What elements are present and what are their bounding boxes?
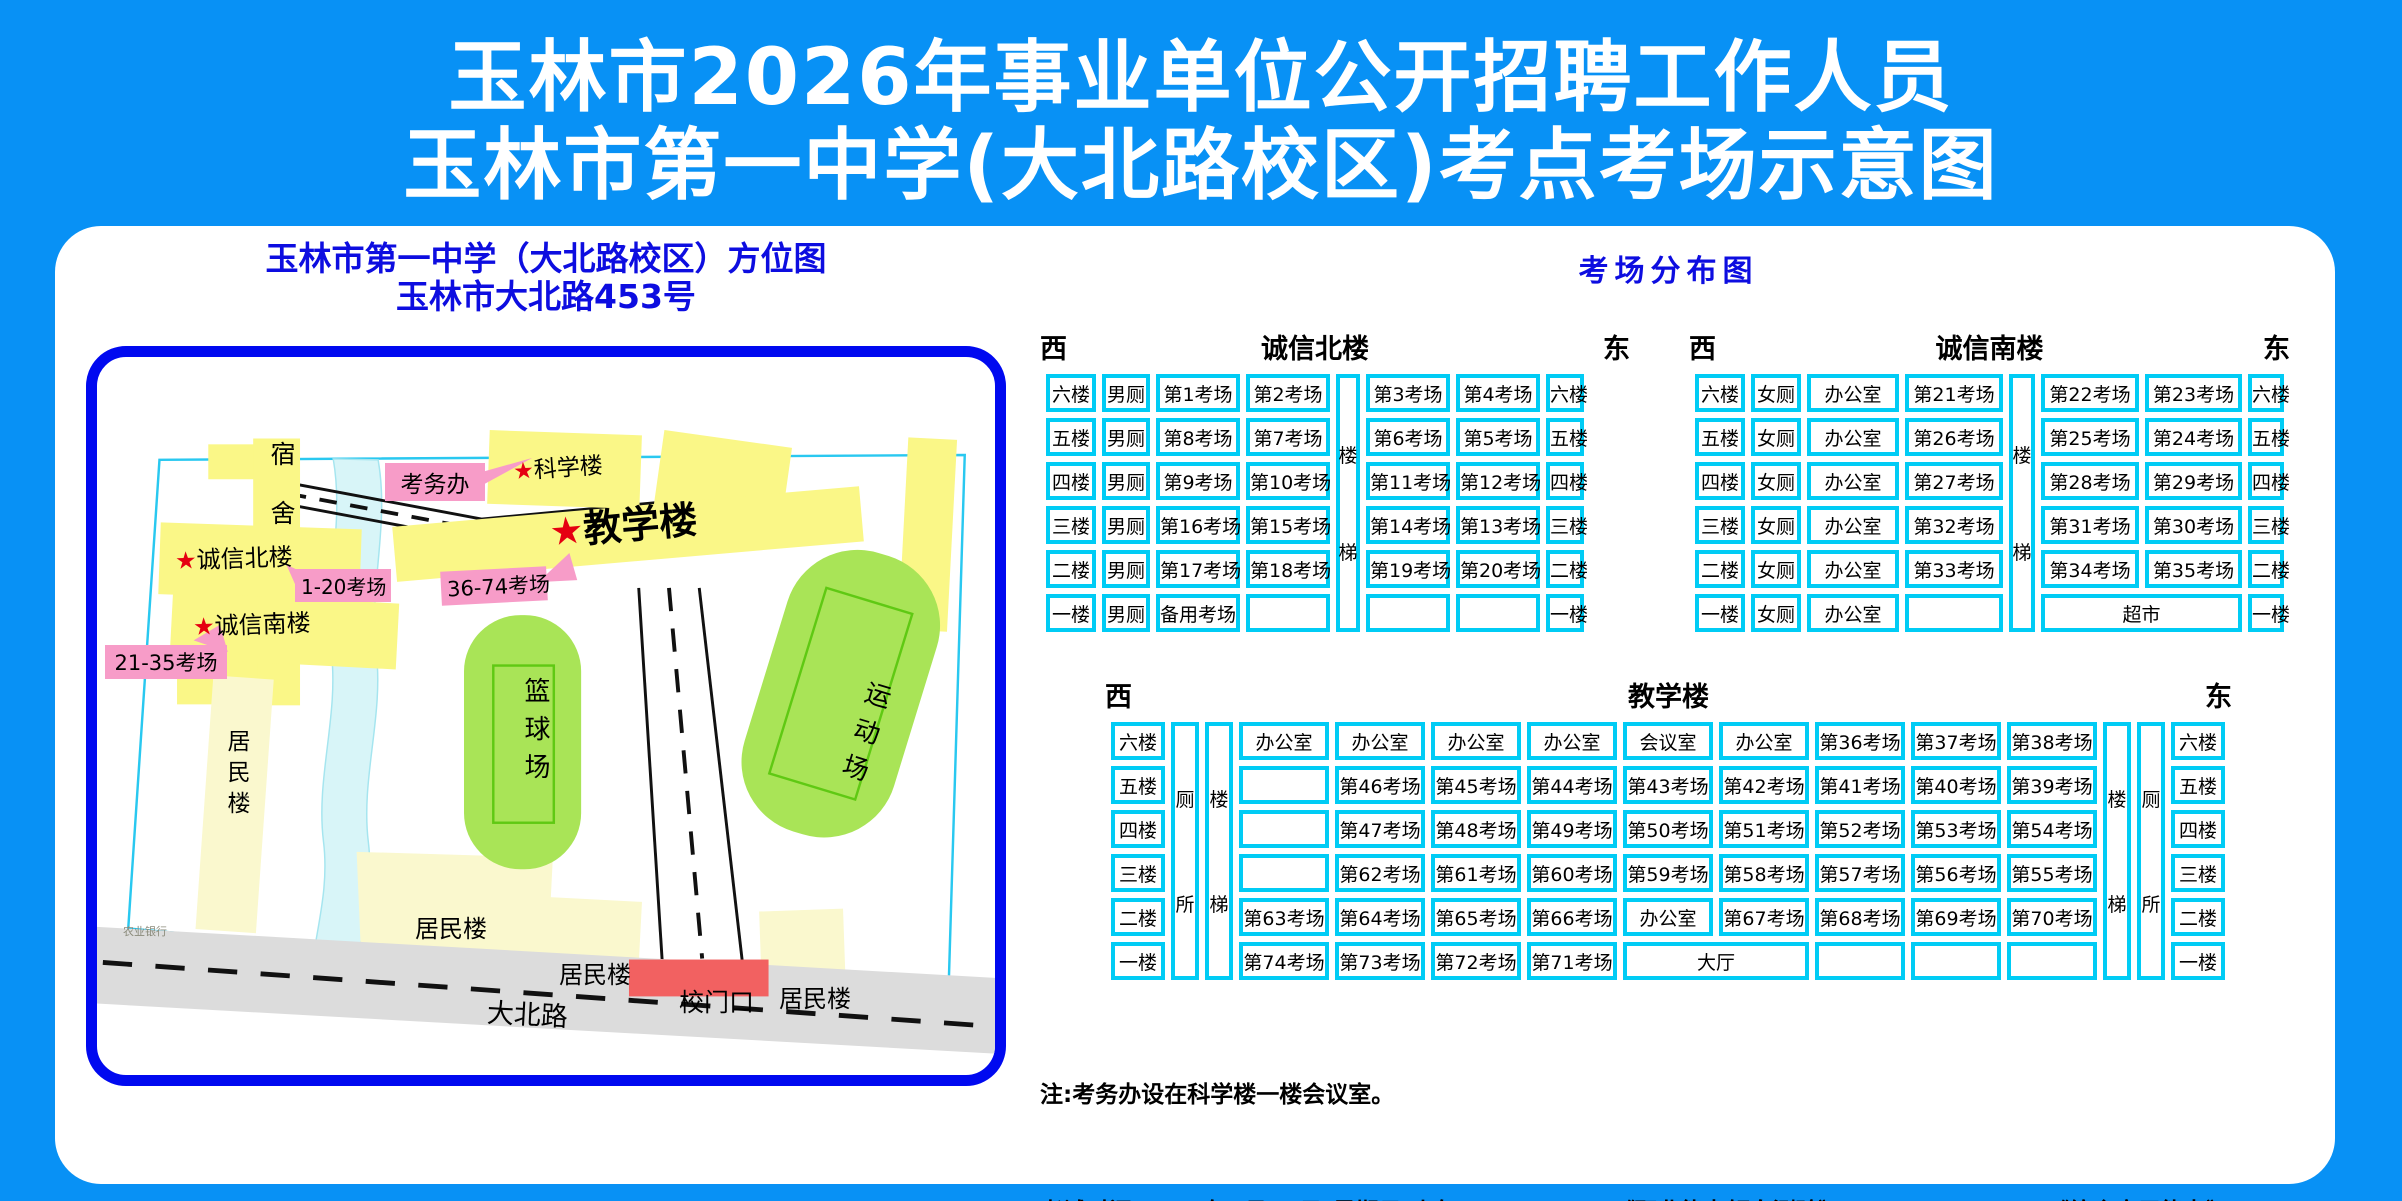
room-cell: 办公室	[1431, 722, 1521, 760]
room-cell: 办公室	[1335, 722, 1425, 760]
room-cell: 女厕	[1751, 462, 1801, 500]
room-cell: 第33考场	[1905, 550, 2003, 588]
room-cell: 一楼	[1546, 594, 1584, 632]
room-cell: 第36考场	[1815, 722, 1905, 760]
stair-cell: 楼梯	[2103, 722, 2131, 980]
room-cell: 第52考场	[1815, 810, 1905, 848]
room-cell: 第30考场	[2145, 506, 2242, 544]
empty-cell	[1239, 810, 1329, 848]
school-gate-label: 校门口	[679, 983, 754, 1019]
room-cell: 三楼	[2171, 854, 2225, 892]
room-cell: 四楼	[1111, 810, 1165, 848]
room-cell: 第49考场	[1527, 810, 1617, 848]
room-cell: 第63考场	[1239, 898, 1329, 936]
room-cell: 六楼	[1546, 374, 1584, 412]
building-title: 教学楼	[1628, 675, 1709, 714]
star-icon: ★	[193, 612, 215, 641]
venue-table: 六楼男厕第1考场第2考场楼梯第3考场第4考场六楼五楼男厕第8考场第7考场第6考场…	[1040, 368, 1590, 638]
table-row: 二楼男厕第17考场第18考场第19考场第20考场二楼	[1046, 550, 1584, 588]
room-cell: 第29考场	[2145, 462, 2242, 500]
room-cell: 第14考场	[1366, 506, 1450, 544]
bank-label: 农业银行	[123, 923, 167, 939]
room-cell: 第16考场	[1156, 506, 1240, 544]
room-cell: 第17考场	[1156, 550, 1240, 588]
stair-cell: 楼梯	[1205, 722, 1233, 980]
room-cell: 一楼	[2248, 594, 2284, 632]
room-cell: 第54考场	[2007, 810, 2097, 848]
room-cell: 第57考场	[1815, 854, 1905, 892]
room-cell: 第5考场	[1456, 418, 1540, 456]
room-cell: 女厕	[1751, 418, 1801, 456]
room-cell: 第23考场	[2145, 374, 2242, 412]
room-cell: 男厕	[1102, 550, 1150, 588]
room-cell: 男厕	[1102, 374, 1150, 412]
table-row: 一楼第74考场第73考场第72考场第71考场大厅一楼	[1111, 942, 2225, 980]
note-line2: 考试时间:2026年3月29日(星期日)上午8:30—10:00《职业能力倾向测…	[1040, 1193, 2230, 1201]
building-title: 诚信北楼	[1261, 327, 1369, 366]
room-cell: 第3考场	[1366, 374, 1450, 412]
east-label: 东	[2263, 327, 2290, 366]
room-cell: 六楼	[1695, 374, 1745, 412]
east-label: 东	[1603, 327, 1630, 366]
exam-venue-poster: 玉林市2026年事业单位公开招聘工作人员 玉林市第一中学(大北路校区)考点考场示…	[0, 0, 2402, 1201]
residential-label: 居民楼	[559, 955, 631, 990]
residential-label: 居民楼	[415, 909, 487, 944]
room-cell: 第26考场	[1905, 418, 2003, 456]
campus-map: 宿舍 考务办 ★科学楼 ★诚信北楼 1-20考场 ★诚信南楼 21-35考场 ★…	[86, 346, 1006, 1086]
teach-table-header: 西 教学楼 东	[1105, 680, 2232, 714]
room-cell: 第55考场	[2007, 854, 2097, 892]
room-cell: 第47考场	[1335, 810, 1425, 848]
room-cell: 第62考场	[1335, 854, 1425, 892]
room-cell: 第35考场	[2145, 550, 2242, 588]
room-cell: 第51考场	[1719, 810, 1809, 848]
room-cell: 第32考场	[1905, 506, 2003, 544]
stair-cell: 楼梯	[2009, 374, 2035, 632]
room-cell: 第8考场	[1156, 418, 1240, 456]
room-cell: 第59考场	[1623, 854, 1713, 892]
room-cell: 第44考场	[1527, 766, 1617, 804]
room-cell: 三楼	[1046, 506, 1096, 544]
room-cell: 二楼	[1046, 550, 1096, 588]
room-cell: 五楼	[1546, 418, 1584, 456]
room-cell: 第9考场	[1156, 462, 1240, 500]
room-cell: 三楼	[2248, 506, 2284, 544]
chengxin-north-label: ★诚信北楼	[174, 537, 293, 576]
room-cell: 一楼	[1111, 942, 1165, 980]
room-cell: 三楼	[1111, 854, 1165, 892]
room-cell: 六楼	[2171, 722, 2225, 760]
room-cell: 二楼	[1546, 550, 1584, 588]
table-row: 三楼第62考场第61考场第60考场第59考场第58考场第57考场第56考场第55…	[1111, 854, 2225, 892]
room-cell: 五楼	[1046, 418, 1096, 456]
empty-cell	[1815, 942, 1905, 980]
north-building-table: 西 诚信北楼 东 六楼男厕第1考场第2考场楼梯第3考场第4考场六楼五楼男厕第8考…	[1040, 332, 1590, 638]
rooms-1-20-label: 1-20考场	[295, 569, 391, 602]
room-cell: 第53考场	[1911, 810, 2001, 848]
empty-cell	[1366, 594, 1450, 632]
room-cell: 女厕	[1751, 506, 1801, 544]
room-cell: 第40考场	[1911, 766, 2001, 804]
map-heading: 玉林市第一中学（大北路校区）方位图 玉林市大北路453号	[86, 240, 1006, 316]
room-cell: 第15考场	[1246, 506, 1330, 544]
table-row: 四楼第47考场第48考场第49考场第50考场第51考场第52考场第53考场第54…	[1111, 810, 2225, 848]
room-cell: 第31考场	[2041, 506, 2139, 544]
room-cell: 办公室	[1807, 506, 1899, 544]
room-cell: 第25考场	[2041, 418, 2139, 456]
north-table-header: 西 诚信北楼 东	[1040, 332, 1590, 366]
room-cell: 办公室	[1807, 374, 1899, 412]
residential-label: 居民楼	[219, 729, 253, 822]
map-heading-line2: 玉林市大北路453号	[86, 278, 1006, 316]
map-heading-line1: 玉林市第一中学（大北路校区）方位图	[86, 240, 1006, 278]
table-row: 五楼男厕第8考场第7考场第6考场第5考场五楼	[1046, 418, 1584, 456]
room-cell: 办公室	[1807, 418, 1899, 456]
west-label: 西	[1689, 327, 1716, 366]
room-cell: 第68考场	[1815, 898, 1905, 936]
table-row: 六楼男厕第1考场第2考场楼梯第3考场第4考场六楼	[1046, 374, 1584, 412]
note-line1: 注:考务办设在科学楼一楼会议室。	[1040, 1076, 2230, 1115]
room-cell: 会议室	[1623, 722, 1713, 760]
science-building-label: ★科学楼	[512, 446, 604, 486]
room-cell: 第58考场	[1719, 854, 1809, 892]
title-line2: 玉林市第一中学(大北路校区)考点考场示意图	[0, 122, 2402, 210]
room-cell: 第66考场	[1527, 898, 1617, 936]
room-cell: 男厕	[1102, 594, 1150, 632]
room-cell: 男厕	[1102, 506, 1150, 544]
room-cell: 办公室	[1807, 462, 1899, 500]
room-cell: 第12考场	[1456, 462, 1540, 500]
table-row: 三楼男厕第16考场第15考场第14考场第13考场三楼	[1046, 506, 1584, 544]
room-cell: 一楼	[1046, 594, 1096, 632]
table-row: 四楼女厕办公室第27考场第28考场第29考场四楼	[1695, 462, 2284, 500]
residential-label: 居民楼	[779, 979, 851, 1014]
room-cell: 三楼	[1695, 506, 1745, 544]
room-cell: 第69考场	[1911, 898, 2001, 936]
table-row: 五楼女厕办公室第26考场第25考场第24考场五楼	[1695, 418, 2284, 456]
toilet-cell: 厕所	[2137, 722, 2165, 980]
room-cell: 第65考场	[1431, 898, 1521, 936]
basketball-court-label: 篮球场	[517, 677, 554, 791]
distribution-heading: 考场分布图	[1105, 246, 2232, 290]
room-cell: 第60考场	[1527, 854, 1617, 892]
room-cell: 四楼	[1046, 462, 1096, 500]
room-cell: 第22考场	[2041, 374, 2139, 412]
table-row: 三楼女厕办公室第32考场第31考场第30考场三楼	[1695, 506, 2284, 544]
room-cell: 第18考场	[1246, 550, 1330, 588]
room-cell: 第74考场	[1239, 942, 1329, 980]
rooms-21-35-label: 21-35考场	[105, 645, 227, 679]
room-cell: 第41考场	[1815, 766, 1905, 804]
star-icon: ★	[548, 508, 586, 555]
room-cell: 第20考场	[1456, 550, 1540, 588]
room-cell: 第67考场	[1719, 898, 1809, 936]
empty-cell	[1246, 594, 1330, 632]
room-cell: 五楼	[2248, 418, 2284, 456]
empty-cell	[1456, 594, 1540, 632]
room-cell: 二楼	[1695, 550, 1745, 588]
room-cell: 女厕	[1751, 594, 1801, 632]
empty-cell	[1239, 766, 1329, 804]
room-cell: 四楼	[1695, 462, 1745, 500]
page-title: 玉林市2026年事业单位公开招聘工作人员 玉林市第一中学(大北路校区)考点考场示…	[0, 34, 2402, 210]
empty-cell	[2007, 942, 2097, 980]
table-row: 四楼男厕第9考场第10考场第11考场第12考场四楼	[1046, 462, 1584, 500]
room-cell: 第13考场	[1456, 506, 1540, 544]
teaching-building-table: 西 教学楼 东 六楼厕所楼梯办公室办公室办公室办公室会议室办公室第36考场第37…	[1105, 680, 2232, 986]
room-cell: 四楼	[2171, 810, 2225, 848]
star-icon: ★	[175, 546, 197, 575]
room-cell: 办公室	[1527, 722, 1617, 760]
room-cell: 第21考场	[1905, 374, 2003, 412]
room-cell: 第38考场	[2007, 722, 2097, 760]
east-label: 东	[2205, 675, 2232, 714]
room-cell: 第11考场	[1366, 462, 1450, 500]
room-cell: 男厕	[1102, 462, 1150, 500]
table-row: 一楼男厕备用考场一楼	[1046, 594, 1584, 632]
room-cell: 第71考场	[1527, 942, 1617, 980]
room-cell: 第7考场	[1246, 418, 1330, 456]
title-line1: 玉林市2026年事业单位公开招聘工作人员	[0, 34, 2402, 122]
south-building-table: 西 诚信南楼 东 六楼女厕办公室第21考场楼梯第22考场第23考场六楼五楼女厕办…	[1689, 332, 2290, 638]
room-cell: 二楼	[1111, 898, 1165, 936]
table-row: 二楼第63考场第64考场第65考场第66考场办公室第67考场第68考场第69考场…	[1111, 898, 2225, 936]
room-cell: 第72考场	[1431, 942, 1521, 980]
room-cell: 一楼	[1695, 594, 1745, 632]
room-cell: 二楼	[2248, 550, 2284, 588]
room-cell: 第50考场	[1623, 810, 1713, 848]
south-table-header: 西 诚信南楼 东	[1689, 332, 2290, 366]
room-cell: 第46考场	[1335, 766, 1425, 804]
room-cell: 第34考场	[2041, 550, 2139, 588]
west-label: 西	[1040, 327, 1067, 366]
table-row: 五楼第46考场第45考场第44考场第43考场第42考场第41考场第40考场第39…	[1111, 766, 2225, 804]
room-cell: 二楼	[2171, 898, 2225, 936]
room-cell: 第28考场	[2041, 462, 2139, 500]
table-row: 六楼厕所楼梯办公室办公室办公室办公室会议室办公室第36考场第37考场第38考场楼…	[1111, 722, 2225, 760]
room-cell: 四楼	[1546, 462, 1584, 500]
star-icon: ★	[512, 458, 534, 485]
toilet-cell: 厕所	[1171, 722, 1199, 980]
room-cell: 第4考场	[1456, 374, 1540, 412]
room-cell: 办公室	[1807, 594, 1899, 632]
room-cell: 办公室	[1239, 722, 1329, 760]
hall-cell: 大厅	[1623, 942, 1809, 980]
stair-cell: 楼梯	[1336, 374, 1360, 632]
room-cell: 第45考场	[1431, 766, 1521, 804]
room-cell: 女厕	[1751, 374, 1801, 412]
empty-cell	[1905, 594, 2003, 632]
room-cell: 第39考场	[2007, 766, 2097, 804]
room-cell: 第37考场	[1911, 722, 2001, 760]
room-cell: 第24考场	[2145, 418, 2242, 456]
rooms-36-74-label: 36-74考场	[440, 566, 548, 606]
empty-cell	[1911, 942, 2001, 980]
room-cell: 备用考场	[1156, 594, 1240, 632]
building-title: 诚信南楼	[1936, 327, 2044, 366]
venue-table: 六楼厕所楼梯办公室办公室办公室办公室会议室办公室第36考场第37考场第38考场楼…	[1105, 716, 2231, 986]
table-row: 二楼女厕办公室第33考场第34考场第35考场二楼	[1695, 550, 2284, 588]
room-cell: 第42考场	[1719, 766, 1809, 804]
empty-cell	[1239, 854, 1329, 892]
room-cell: 六楼	[1046, 374, 1096, 412]
room-cell: 六楼	[1111, 722, 1165, 760]
table-row: 六楼女厕办公室第21考场楼梯第22考场第23考场六楼	[1695, 374, 2284, 412]
shop-cell: 超市	[2041, 594, 2242, 632]
room-cell: 第48考场	[1431, 810, 1521, 848]
room-cell: 第2考场	[1246, 374, 1330, 412]
venue-table: 六楼女厕办公室第21考场楼梯第22考场第23考场六楼五楼女厕办公室第26考场第2…	[1689, 368, 2290, 638]
room-cell: 办公室	[1623, 898, 1713, 936]
room-cell: 办公室	[1719, 722, 1809, 760]
room-cell: 五楼	[1111, 766, 1165, 804]
room-cell: 一楼	[2171, 942, 2225, 980]
room-cell: 第64考场	[1335, 898, 1425, 936]
room-cell: 第61考场	[1431, 854, 1521, 892]
room-cell: 五楼	[2171, 766, 2225, 804]
room-cell: 第73考场	[1335, 942, 1425, 980]
room-cell: 男厕	[1102, 418, 1150, 456]
west-label: 西	[1105, 675, 1132, 714]
room-cell: 三楼	[1546, 506, 1584, 544]
room-cell: 五楼	[1695, 418, 1745, 456]
chengxin-south-label: ★诚信南楼	[192, 603, 311, 642]
room-cell: 第27考场	[1905, 462, 2003, 500]
room-cell: 第56考场	[1911, 854, 2001, 892]
dabei-road-label: 大北路	[486, 991, 569, 1034]
dorm-wing	[208, 444, 257, 479]
room-cell: 第43考场	[1623, 766, 1713, 804]
room-cell: 第70考场	[2007, 898, 2097, 936]
room-cell: 第1考场	[1156, 374, 1240, 412]
room-cell: 第19考场	[1366, 550, 1450, 588]
room-cell: 六楼	[2248, 374, 2284, 412]
room-cell: 第10考场	[1246, 462, 1330, 500]
exam-office-label: 考务办	[385, 463, 485, 501]
room-cell: 第6考场	[1366, 418, 1450, 456]
room-cell: 女厕	[1751, 550, 1801, 588]
room-cell: 四楼	[2248, 462, 2284, 500]
notes: 注:考务办设在科学楼一楼会议室。 考试时间:2026年3月29日(星期日)上午8…	[1040, 998, 2230, 1201]
table-row: 一楼女厕办公室超市一楼	[1695, 594, 2284, 632]
room-cell: 办公室	[1807, 550, 1899, 588]
